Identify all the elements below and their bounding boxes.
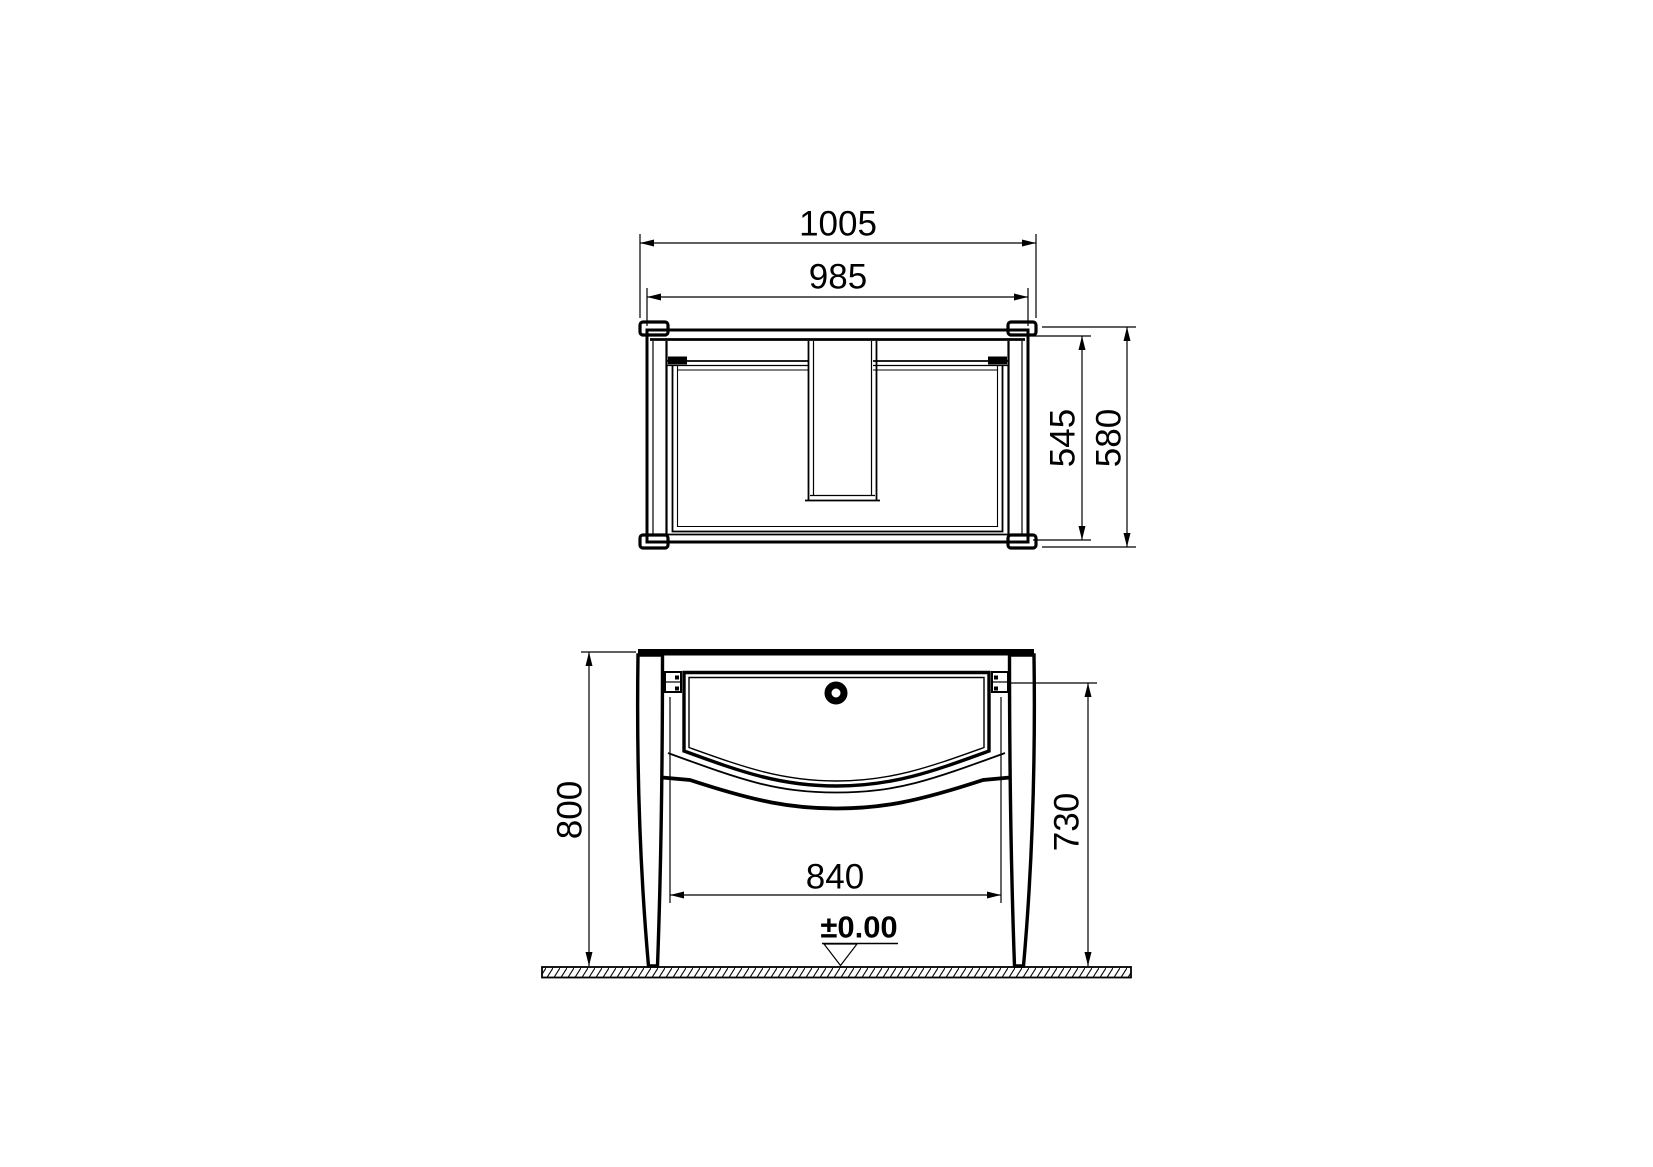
arrowhead bbox=[586, 952, 593, 966]
plan-bracket-left bbox=[668, 357, 687, 365]
hinge-right bbox=[992, 672, 1008, 692]
drawer-front-inner bbox=[689, 678, 984, 782]
dim-label-overall-height: 800 bbox=[553, 781, 588, 839]
arrowhead bbox=[1085, 683, 1092, 697]
plan-plumbing-recess bbox=[805, 341, 880, 501]
datum-label: ±0.00 bbox=[820, 912, 897, 943]
plan-view bbox=[640, 322, 1036, 548]
plan-drawer-box-outer bbox=[673, 366, 1003, 532]
plan-bracket-right bbox=[988, 357, 1007, 365]
dim-label-overall-depth: 580 bbox=[1092, 409, 1127, 467]
dim-label-carcass-width: 985 bbox=[809, 260, 867, 295]
ground-line bbox=[542, 967, 1131, 978]
arrowhead bbox=[1085, 952, 1092, 966]
plan-drawer-box-inner bbox=[678, 366, 998, 527]
arrowhead bbox=[1022, 240, 1036, 247]
hinge-left bbox=[665, 672, 681, 692]
dim-label-carcass-depth: 545 bbox=[1046, 409, 1081, 467]
dim-label-inner-width: 840 bbox=[806, 860, 864, 895]
dim-label-overall-width: 1005 bbox=[799, 207, 877, 242]
arrowhead bbox=[1079, 336, 1086, 350]
front-leg-left bbox=[638, 655, 663, 966]
technical-drawing bbox=[0, 0, 1653, 1167]
datum-triangle bbox=[824, 944, 857, 966]
arrowhead bbox=[586, 652, 593, 666]
front-top-rail bbox=[638, 649, 1034, 656]
arrowhead bbox=[1014, 294, 1028, 301]
arrowhead bbox=[987, 892, 1001, 899]
arrowhead bbox=[1124, 327, 1131, 341]
front-leg-right bbox=[1010, 655, 1035, 966]
arrowhead bbox=[647, 294, 661, 301]
dimensions bbox=[581, 234, 1136, 966]
drawer-front-outer bbox=[684, 673, 989, 787]
ground bbox=[542, 944, 1131, 978]
arrowhead bbox=[1079, 526, 1086, 540]
arrowhead bbox=[640, 240, 654, 247]
dim-label-underside-height: 730 bbox=[1050, 793, 1085, 851]
arrowhead bbox=[1124, 533, 1131, 547]
arrowhead bbox=[670, 892, 684, 899]
drawer-knob-icon bbox=[828, 685, 844, 701]
drawing-canvas: 1005 985 545 580 800 730 840 ±0.00 bbox=[0, 0, 1653, 1167]
